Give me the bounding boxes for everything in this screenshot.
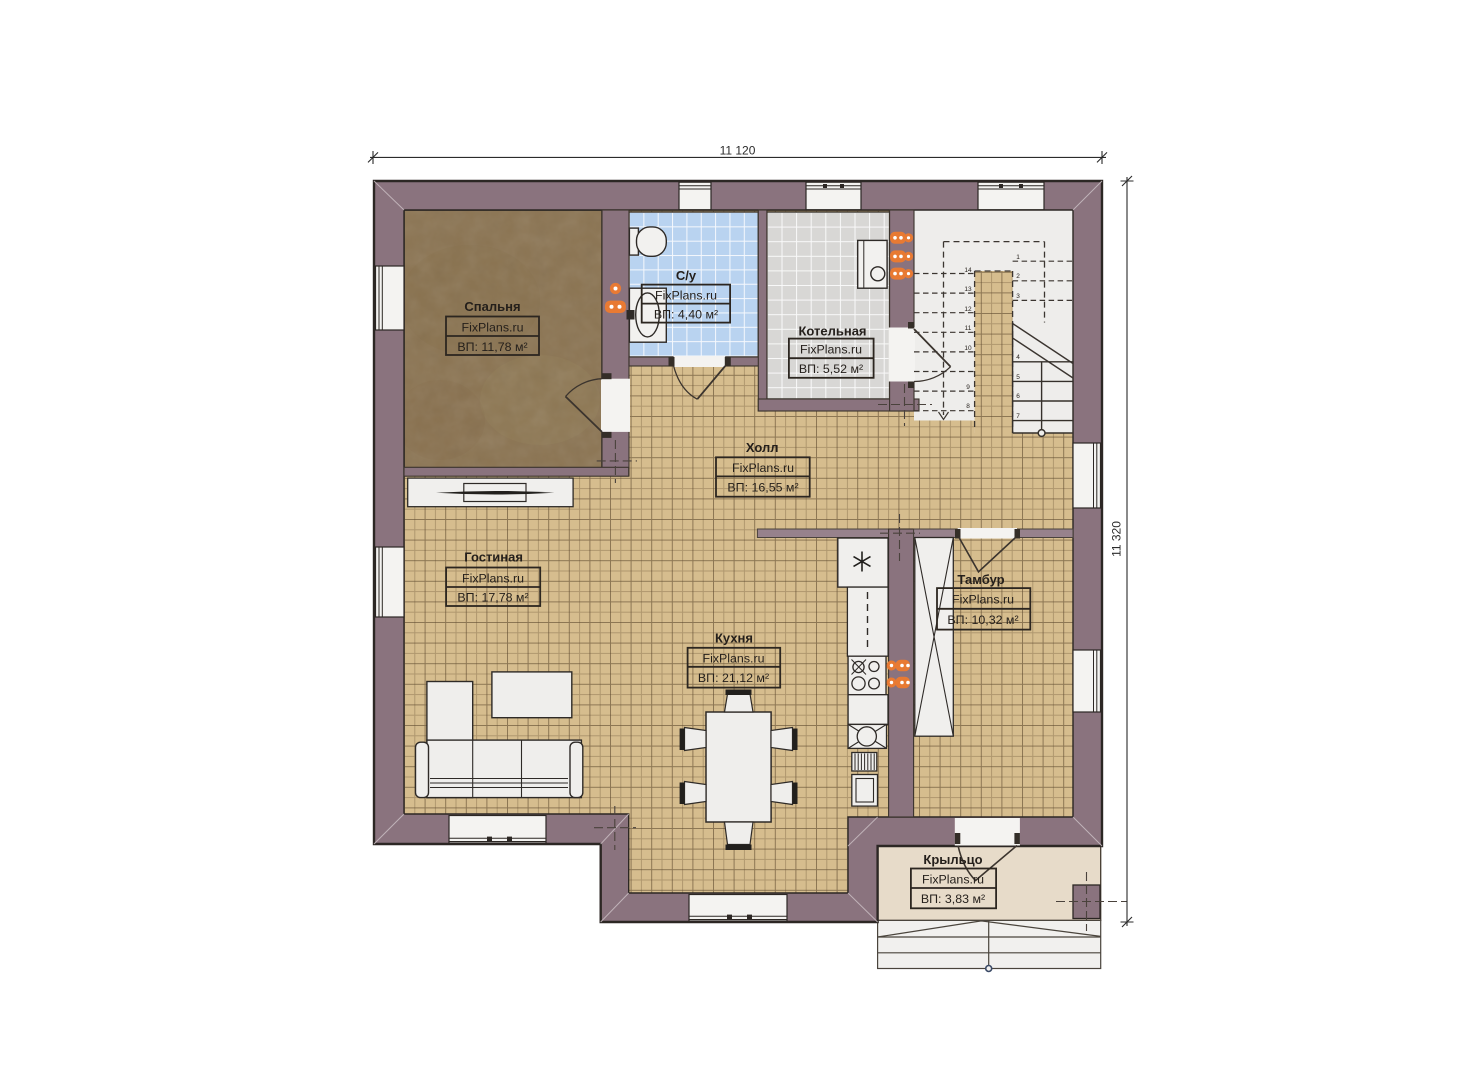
svg-text:ВП: 5,52 м²: ВП: 5,52 м² <box>799 362 863 376</box>
svg-text:14: 14 <box>964 267 972 274</box>
svg-text:ВП: 17,78 м²: ВП: 17,78 м² <box>457 591 528 605</box>
svg-text:ВП: 10,32 м²: ВП: 10,32 м² <box>947 613 1018 627</box>
svg-text:5: 5 <box>1016 374 1020 381</box>
svg-text:FixPlans.ru: FixPlans.ru <box>655 289 717 303</box>
svg-text:9: 9 <box>966 384 970 391</box>
svg-text:Гостиная: Гостиная <box>464 550 523 565</box>
svg-text:Котельная: Котельная <box>798 324 866 339</box>
svg-text:FixPlans.ru: FixPlans.ru <box>703 652 765 666</box>
svg-text:7: 7 <box>1016 413 1020 420</box>
svg-text:С/у: С/у <box>676 268 697 283</box>
svg-text:FixPlans.ru: FixPlans.ru <box>462 572 524 586</box>
svg-text:13: 13 <box>964 286 972 293</box>
svg-text:ВП: 4,40 м²: ВП: 4,40 м² <box>654 308 718 322</box>
svg-text:Крыльцо: Крыльцо <box>923 852 982 867</box>
svg-text:8: 8 <box>966 403 970 410</box>
svg-text:ВП: 11,78 м²: ВП: 11,78 м² <box>457 340 527 354</box>
svg-text:10: 10 <box>964 345 972 352</box>
svg-text:ВП: 16,55 м²: ВП: 16,55 м² <box>727 481 798 495</box>
svg-text:3: 3 <box>1016 293 1020 300</box>
svg-text:FixPlans.ru: FixPlans.ru <box>952 593 1014 607</box>
svg-text:Холл: Холл <box>746 440 779 455</box>
svg-text:12: 12 <box>964 306 972 313</box>
svg-text:2: 2 <box>1016 273 1020 280</box>
svg-text:FixPlans.ru: FixPlans.ru <box>800 343 862 357</box>
svg-text:11 320: 11 320 <box>1110 521 1124 557</box>
svg-text:11 120: 11 120 <box>720 144 756 158</box>
svg-text:ВП: 3,83 м²: ВП: 3,83 м² <box>921 892 985 906</box>
svg-text:Тамбур: Тамбур <box>957 572 1004 587</box>
svg-text:6: 6 <box>1016 393 1020 400</box>
svg-text:4: 4 <box>1016 354 1020 361</box>
svg-text:Спальня: Спальня <box>464 299 520 314</box>
svg-text:Кухня: Кухня <box>715 631 753 646</box>
svg-text:ВП: 21,12 м²: ВП: 21,12 м² <box>698 671 769 685</box>
svg-text:1: 1 <box>1016 254 1020 261</box>
svg-text:11: 11 <box>965 325 972 332</box>
svg-text:FixPlans.ru: FixPlans.ru <box>922 873 984 887</box>
svg-text:FixPlans.ru: FixPlans.ru <box>462 321 524 335</box>
svg-text:FixPlans.ru: FixPlans.ru <box>732 461 794 475</box>
